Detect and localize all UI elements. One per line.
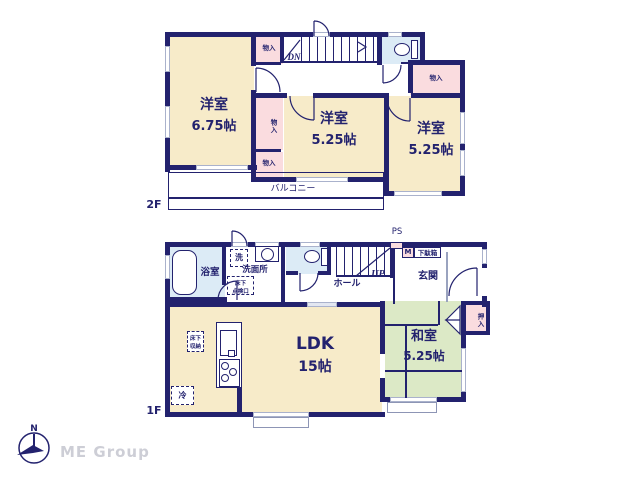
stair-direction-line	[284, 40, 366, 60]
door-arc	[290, 96, 314, 120]
door-arc	[218, 281, 237, 300]
door-arc	[232, 231, 247, 246]
door-arc	[300, 273, 318, 291]
compass-north-label: N	[27, 425, 41, 434]
door-arc	[383, 65, 401, 83]
door-arc	[387, 98, 410, 121]
closet-double-door-icon	[446, 306, 460, 334]
door-arc	[314, 21, 329, 36]
brand-logo-text: ME Group	[60, 443, 150, 461]
compass-icon	[17, 433, 49, 463]
floorplan-canvas: 洋室 6.75帖 洋室 5.25帖 洋室 5.25帖 物入 物入 物入 物入 D…	[0, 0, 640, 480]
stair-direction-line	[356, 248, 390, 276]
entrance-door-arc	[449, 268, 477, 296]
door-arc	[256, 68, 280, 92]
overlay-graphics	[0, 0, 640, 480]
